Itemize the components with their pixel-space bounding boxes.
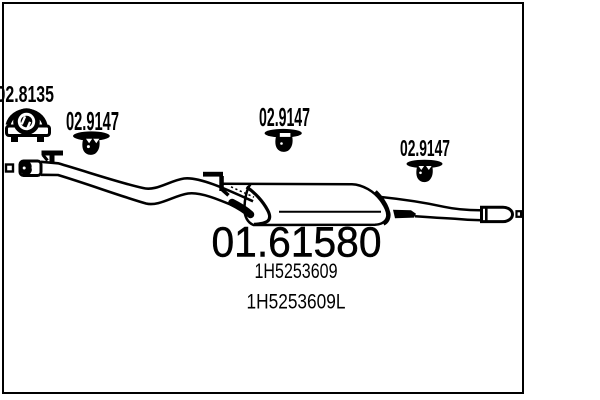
svg-text:02.9147: 02.9147 [400,135,450,161]
svg-text:1H5253609: 1H5253609 [255,259,338,283]
svg-text:1H5253609L: 1H5253609L [247,290,346,314]
svg-text:02.9147: 02.9147 [259,104,310,132]
svg-text:02.8135: 02.8135 [0,81,54,107]
